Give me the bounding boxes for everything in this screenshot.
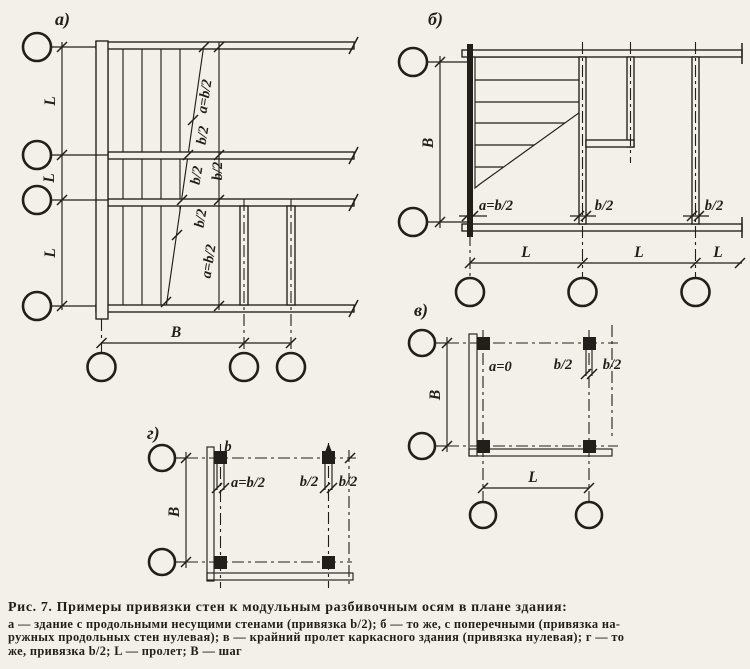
columns-v	[477, 337, 596, 453]
dim-a-half: a=b/2	[198, 243, 219, 279]
figure-caption: Рис. 7. Примеры привязки стен к модульны…	[8, 599, 744, 658]
dim-a-half: a=b/2	[231, 475, 265, 491]
axis-circles-b	[399, 48, 710, 306]
columns-g	[214, 451, 335, 569]
plan-g-frame-corner-half: г) b a=b/2 b/2	[147, 423, 357, 588]
figure-drawing: а) L	[0, 0, 750, 598]
caption-line: ружных продольных стен нулевая); в — кра…	[8, 631, 744, 644]
dim-B: B	[166, 507, 183, 518]
dim-B: B	[420, 138, 437, 149]
wall-break-marks	[349, 37, 358, 317]
dimension-B-left-b: B	[420, 56, 467, 228]
dimension-L-column: L L L	[41, 42, 67, 311]
column-tie-v: a=0 b/2 b/2	[489, 350, 621, 379]
axis-arrow-up	[325, 443, 332, 452]
figure-page: а) L	[0, 0, 750, 669]
dim-a-zero: a=0	[489, 359, 512, 375]
dim-a-half: a=b/2	[479, 198, 513, 214]
dim-half: b/2	[554, 357, 573, 373]
plan-v-frame-corner-zero: в) a=0 b/2 b/2	[409, 300, 621, 528]
panel-a-tag: а)	[55, 9, 70, 30]
caption-line: а — здание с продольными несущими стенам…	[8, 618, 744, 631]
dim-half: b/2	[339, 474, 358, 490]
dim-L: L	[42, 248, 59, 258]
dim-half: b/2	[300, 474, 319, 490]
dim-L: L	[712, 244, 722, 261]
dim-L: L	[520, 244, 530, 261]
walls-v	[469, 334, 612, 456]
dim-B: B	[427, 390, 444, 401]
dim-B: B	[170, 324, 181, 341]
dimension-L-bottom-b: L L L	[465, 244, 745, 268]
dimension-B-bottom: B	[97, 324, 297, 348]
wall-offset-marks-b: a=b/2 b/2 b/2	[459, 198, 723, 221]
plan-b-transverse-walls: б)	[399, 9, 745, 306]
panel-g-tag: г)	[147, 423, 160, 444]
dim-L: L	[633, 244, 643, 261]
column-ties-g: a=b/2 b/2 b/2	[212, 464, 357, 493]
dim-half: b/2	[194, 125, 213, 146]
stippled-bearing-wall-b	[475, 57, 583, 188]
dim-a-half: a=b/2	[194, 78, 215, 114]
dim-L: L	[41, 173, 58, 183]
dim-L: L	[527, 469, 537, 486]
dim-half: b/2	[192, 208, 211, 229]
dim-half: b/2	[603, 357, 622, 373]
dim-half: b/2	[210, 162, 226, 181]
panel-v-tag: в)	[414, 300, 428, 321]
dim-half: b/2	[188, 165, 207, 186]
dimension-offsets-a: a=b/2 b/2 b/2 b/2 b/2 a=b/2	[161, 42, 226, 311]
dimension-L-bottom-v: L	[478, 469, 594, 493]
caption-line: же, привязка b/2; L — пролет; В — шаг	[8, 645, 744, 658]
dim-half: b/2	[595, 198, 614, 214]
dim-L: L	[42, 96, 59, 106]
plan-a-longitudinal-walls: а) L	[23, 9, 358, 381]
dim-half: b/2	[705, 198, 724, 214]
caption-title: Рис. 7. Примеры привязки стен к модульны…	[8, 599, 744, 616]
axis-circles-a	[23, 33, 305, 381]
panel-b-tag: б)	[428, 9, 443, 30]
